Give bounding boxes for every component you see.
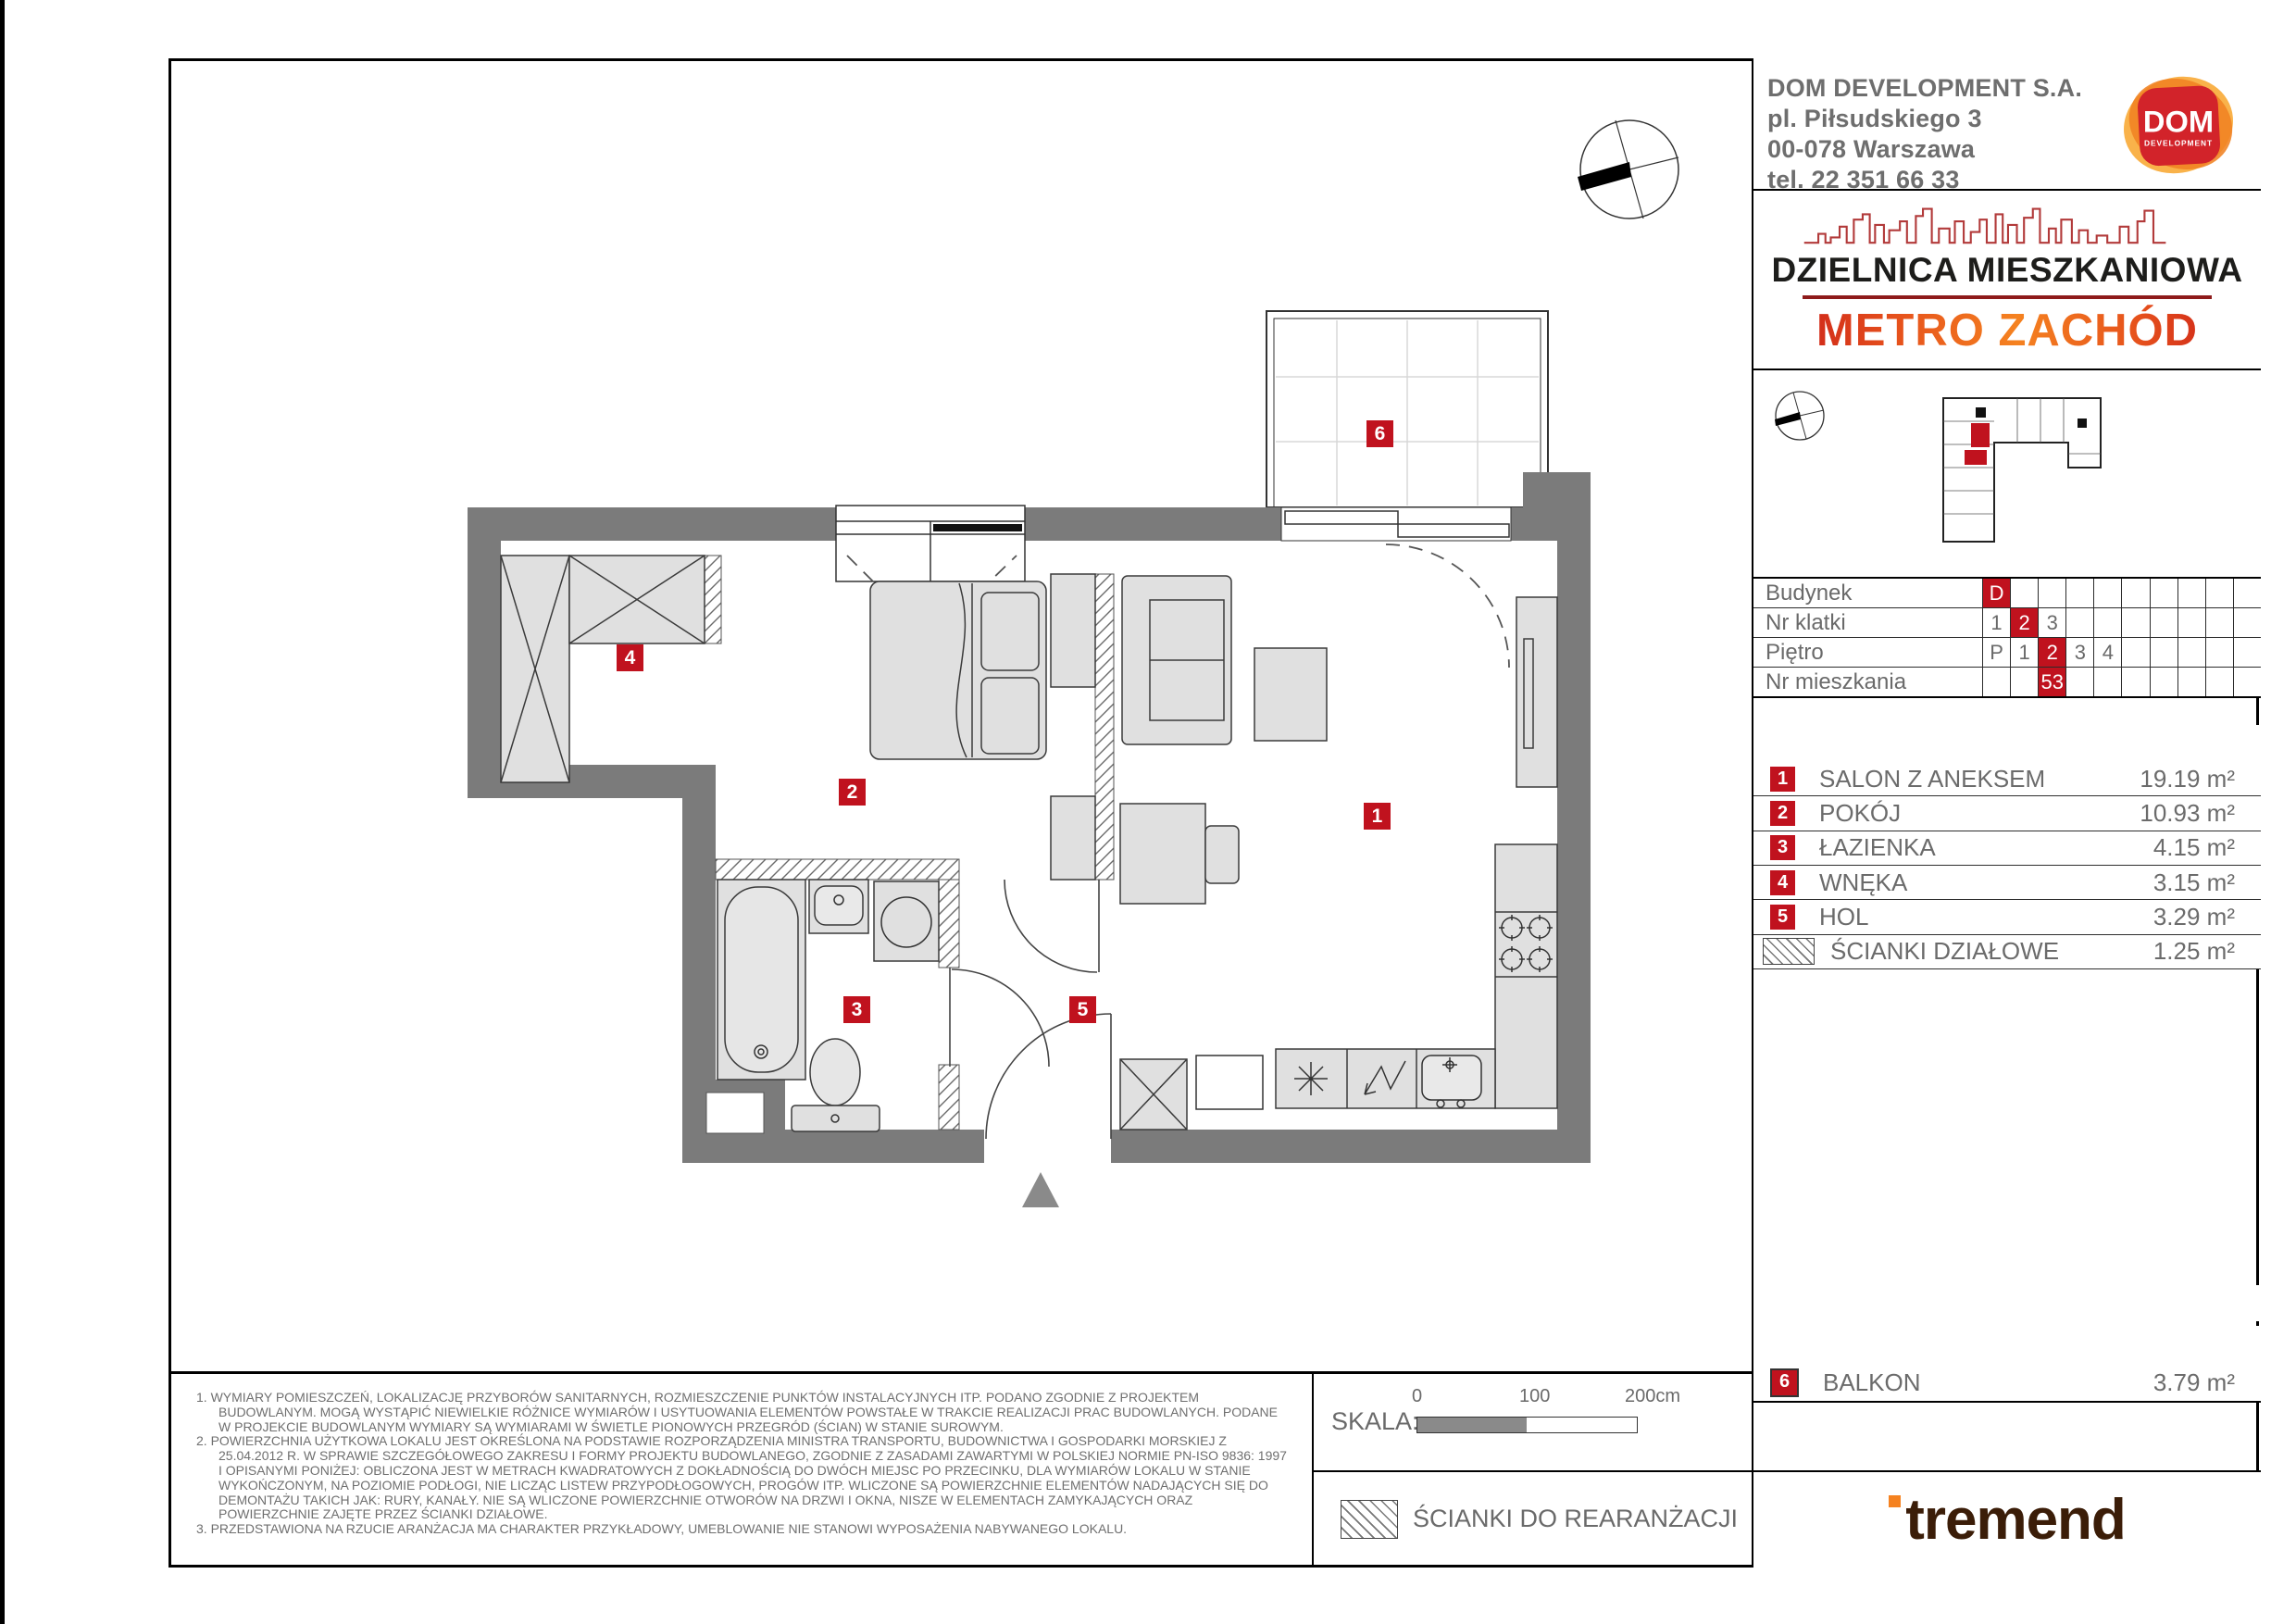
room-number-badge: 1: [1770, 767, 1795, 792]
room-badge-1: 1: [1364, 803, 1391, 830]
bed: [870, 581, 1046, 759]
kitchen-counter: [1276, 844, 1557, 1108]
floor-plan: 1 2 3 4 5 6: [168, 58, 1752, 1371]
entrance-arrow-icon: [1022, 1172, 1059, 1207]
project-name: METRO ZACHÓD: [1753, 305, 2261, 356]
note-2: 2. POWIERZCHNIA UŻYTKOWA LOKALU JEST OKR…: [196, 1434, 1290, 1522]
list-item: 4 WNĘKA 3.15 m²: [1753, 866, 2261, 900]
bathtub: [717, 880, 805, 1080]
appliance-icon: [1294, 1062, 1328, 1095]
room-badge-3: 3: [843, 996, 870, 1023]
note-1: 1. WYMIARY POMIESZCZEŃ, LOKALIZACJĘ PRZY…: [196, 1391, 1290, 1434]
coffee-table: [1254, 648, 1327, 741]
rearrangement-legend: ŚCIANKI DO REARANŻACJI: [1314, 1470, 1752, 1568]
sidebar: DOM DEVELOPMENT S.A. pl. Piłsudskiego 3 …: [1752, 58, 2259, 1568]
page-edge-line: [0, 0, 5, 1624]
table-row: Budynek D: [1753, 579, 2261, 607]
dom-development-logo-icon: DOM DEVELOPMENT: [2109, 60, 2248, 190]
project-brand: DZIELNICA MIESZKANIOWA METRO ZACHÓD: [1753, 191, 2261, 370]
wardrobe-column: [1051, 574, 1095, 687]
balcony: [1267, 311, 1548, 507]
company-header: DOM DEVELOPMENT S.A. pl. Piłsudskiego 3 …: [1753, 58, 2261, 191]
sofa: [1122, 576, 1231, 744]
room-badge-2: 2: [839, 779, 866, 806]
table-row: Nr mieszkania 53: [1753, 667, 2261, 696]
room-number-badge: 3: [1770, 835, 1795, 860]
scale-label: SKALA:: [1331, 1407, 1419, 1436]
svg-text:6: 6: [1375, 423, 1386, 444]
entrance-door: [984, 1014, 1111, 1207]
room-badge-4: 4: [617, 644, 643, 671]
list-item: 3 ŁAZIENKA 4.15 m²: [1753, 831, 2261, 866]
skyline-icon: [1799, 200, 2215, 246]
list-item: ŚCIANKI DZIAŁOWE 1.25 m²: [1753, 935, 2261, 969]
building-plan-icon: [1753, 370, 2261, 579]
brand-divider: [1803, 295, 2212, 299]
scale-bar: [1416, 1417, 1638, 1433]
table-row: Nr klatki 1 2 3: [1753, 607, 2261, 637]
note-3: 3. PRZEDSTAWIONA NA RZUCIE ARANŻACJA MA …: [196, 1522, 1290, 1537]
location-table: Budynek D Nr klatki 1 2 3 Piętro P 1 2 3…: [1753, 579, 2261, 698]
bathroom-door: [950, 968, 1049, 1067]
wardrobe-column: [1051, 796, 1095, 880]
svg-text:DEVELOPMENT: DEVELOPMENT: [2144, 138, 2213, 147]
room-badge-6: 6: [1366, 420, 1393, 447]
tv-cabinet: [1516, 597, 1557, 787]
list-item: 5 HOL 3.29 m²: [1753, 900, 2261, 934]
balcony-row: 6 BALKON 3.79 m²: [1753, 1364, 2261, 1403]
list-item: 1 SALON Z ANEKSEM 19.19 m²: [1753, 762, 2261, 796]
list-item: 2 POKÓJ 10.93 m²: [1753, 796, 2261, 831]
dining-table: [1120, 804, 1239, 904]
wardrobe: [501, 556, 705, 782]
real-area-value: 41.96: [2174, 1330, 2261, 1360]
rooms-list-header: ZESTAWIENIE POMIESZCZEŃ:: [1753, 725, 2261, 762]
site-plan: [1753, 370, 2261, 579]
scale-cell: SKALA: 0 100 200cm: [1314, 1371, 1752, 1470]
project-district: DZIELNICA MIESZKANIOWA: [1753, 251, 2261, 290]
room-number-badge: 6: [1770, 1368, 1799, 1397]
rearrangement-hatch-icon: [1341, 1500, 1398, 1539]
room-number-badge: 2: [1770, 801, 1795, 826]
room-badge-5: 5: [1069, 996, 1096, 1023]
svg-text:5: 5: [1078, 999, 1089, 1020]
tremend-square-icon: [1889, 1495, 1901, 1507]
usable-area-value: 40.71: [2174, 1289, 2261, 1318]
svg-text:4: 4: [625, 647, 636, 668]
legal-notes: 1. WYMIARY POMIESZCZEŃ, LOKALIZACJĘ PRZY…: [168, 1371, 1314, 1568]
svg-text:1: 1: [1372, 806, 1383, 827]
shaft: [1196, 1056, 1263, 1109]
tremend-logo: tremend: [1753, 1470, 2261, 1568]
room-number-badge: 5: [1770, 905, 1795, 930]
balcony-door: [1281, 507, 1511, 668]
svg-text:DOM: DOM: [2143, 104, 2214, 138]
real-area-bar: POWIERZCHNIA RZECZYWISTA: 41.96: [1753, 1326, 2261, 1364]
table-row: Piętro P 1 2 3 4: [1753, 637, 2261, 667]
kitchen-sink: [1422, 1056, 1481, 1107]
bathroom-sink: [809, 880, 868, 933]
hall-closet: [1120, 1059, 1187, 1130]
compass-icon: [1578, 120, 1678, 219]
washing-machine: [874, 881, 939, 961]
bedroom-door: [1004, 880, 1099, 972]
svg-text:2: 2: [847, 781, 858, 803]
rooms-list: 1 SALON Z ANEKSEM 19.19 m² 2 POKÓJ 10.93…: [1753, 762, 2261, 969]
partition-hatch-icon: [1763, 938, 1815, 965]
room-number-badge: 4: [1770, 870, 1795, 895]
svg-text:3: 3: [852, 999, 863, 1020]
